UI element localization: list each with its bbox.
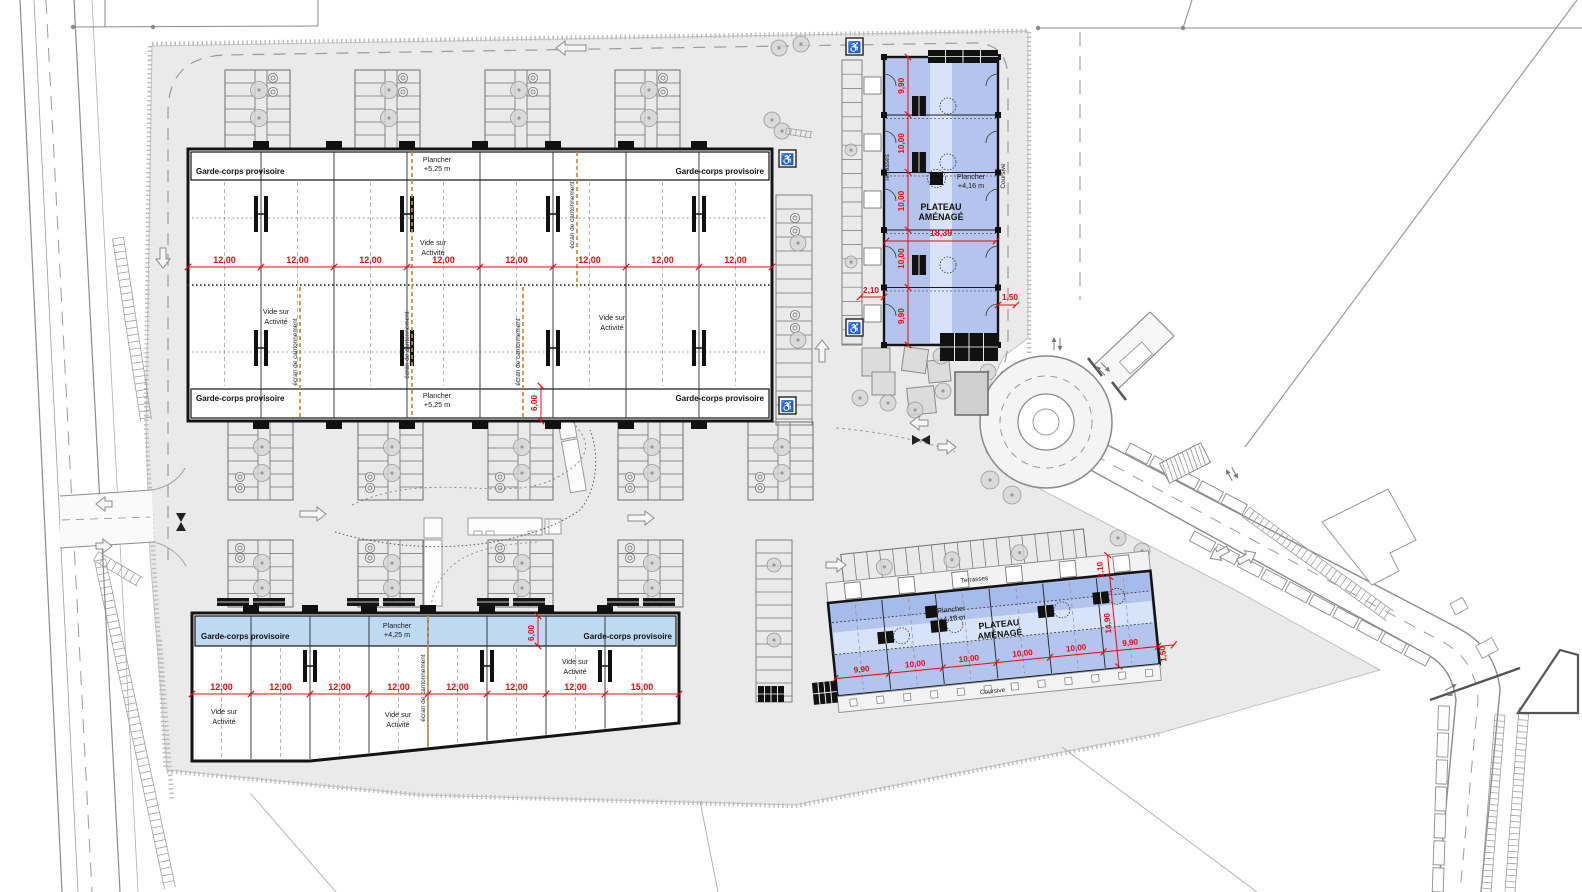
vide-label: Activité xyxy=(212,717,235,726)
terrasses-label: Terrasses xyxy=(884,154,891,182)
dimension-label: 12,00 xyxy=(213,255,236,265)
two-way-arrow-icon xyxy=(1224,465,1240,483)
dimension-label: 10,00 xyxy=(897,133,906,154)
vide-label: Vide sur xyxy=(562,657,589,666)
plancher-label: Plancher xyxy=(383,621,412,630)
plateau-title: AMÉNAGÉ xyxy=(919,212,964,222)
dimension-label: 12,00 xyxy=(651,255,674,265)
garde-corps-label: Garde-corps provisoire xyxy=(196,167,285,176)
plancher-level-label: +5,25 m xyxy=(424,400,450,409)
ecran-label: écran de cantonnement xyxy=(420,654,427,721)
dimension-label: 12,00 xyxy=(578,255,601,265)
dimension-label: 12,00 xyxy=(505,255,528,265)
lamp-icon xyxy=(625,553,634,562)
dimension-label: 9,90 xyxy=(897,77,906,93)
lamp-icon xyxy=(365,553,374,562)
garde-corps-label: Garde-corps provisoire xyxy=(676,394,765,403)
dimension-label: 12,00 xyxy=(269,682,292,692)
accessible-parking-icon: ♿ xyxy=(846,38,863,55)
dimension-label: 1,50 xyxy=(1002,293,1018,302)
lamp-icon xyxy=(235,472,244,481)
lamp-icon xyxy=(268,73,277,82)
dimension-label: 12,00 xyxy=(505,682,528,692)
ecran-label: écran de cantonnement xyxy=(515,318,522,385)
dimension-label: 9,90 xyxy=(897,308,906,324)
site-plan-drawing: ♿♿♿♿ écran de cantonnementécran de canto… xyxy=(0,0,1582,892)
lamp-icon xyxy=(235,483,244,492)
ecran-label: écran de cantonnement xyxy=(569,181,576,248)
lamp-icon xyxy=(755,472,764,481)
lamp-icon xyxy=(365,472,374,481)
lamp-icon xyxy=(790,310,799,319)
plancher-label: Plancher xyxy=(957,172,986,181)
dimension-label: 6,00 xyxy=(530,395,539,411)
dimension-label: 12,00 xyxy=(564,682,587,692)
two-way-arrow-icon xyxy=(1443,682,1461,698)
garde-corps-label: Garde-corps provisoire xyxy=(676,167,765,176)
lamp-icon xyxy=(398,73,407,82)
plaza-pad xyxy=(872,372,895,395)
ecran-label: écran de cantonnement xyxy=(292,318,299,385)
vide-label: Activité xyxy=(600,323,623,332)
vide-label: Activité xyxy=(386,720,409,729)
vide-label: Vide sur xyxy=(263,307,290,316)
dimension-label: 2,10 xyxy=(1095,561,1106,578)
dimension-label: 10,00 xyxy=(897,190,906,211)
dimension-label: 12,00 xyxy=(210,682,233,692)
lamp-icon xyxy=(755,483,764,492)
dimension-label: 9,90 xyxy=(853,664,870,675)
garde-corps-label: Garde-corps provisoire xyxy=(201,632,290,641)
dimension-label: 6,00 xyxy=(527,625,536,641)
vide-label: Vide sur xyxy=(599,313,626,322)
lamp-icon xyxy=(625,543,634,552)
dimension-label: 1,50 xyxy=(1158,645,1169,662)
vide-label: Activité xyxy=(264,317,287,326)
two-way-arrow-icon xyxy=(1052,337,1063,351)
dimension-label: 12,00 xyxy=(328,682,351,692)
lamp-icon xyxy=(235,543,244,552)
lamp-icon xyxy=(235,553,244,562)
lamp-icon xyxy=(365,483,374,492)
plancher-level-label: +5,25 m xyxy=(424,164,450,173)
lamp-icon xyxy=(495,472,504,481)
svg-text:♿: ♿ xyxy=(848,322,862,335)
dimension-label: 12,00 xyxy=(387,682,410,692)
vide-label: Activité xyxy=(421,248,444,257)
svg-text:♿: ♿ xyxy=(848,41,862,54)
lamp-icon xyxy=(625,483,634,492)
accessible-parking-icon: ♿ xyxy=(779,150,796,167)
dimension-label: 12,00 xyxy=(446,682,469,692)
dimension-label: 12,00 xyxy=(359,255,382,265)
lamp-icon xyxy=(790,226,799,235)
vide-label: Vide sur xyxy=(420,238,447,247)
lamp-icon xyxy=(790,323,799,332)
plancher-level-label: +4,25 m xyxy=(384,630,410,639)
lamp-icon xyxy=(625,472,634,481)
ecran-label: écran de cantonnement xyxy=(404,311,411,378)
accessible-parking-icon: ♿ xyxy=(779,397,796,414)
lamp-icon xyxy=(658,87,667,96)
lamp-icon xyxy=(495,553,504,562)
garde-corps-label: Garde-corps provisoire xyxy=(196,394,285,403)
plancher-level-label: +4,16 m xyxy=(958,181,984,190)
lamp-icon xyxy=(365,543,374,552)
plateau-title: PLATEAU xyxy=(921,202,962,212)
dimension-label: 2,10 xyxy=(863,286,879,295)
lamp-icon xyxy=(790,213,799,222)
lamp-icon xyxy=(268,87,277,96)
lamp-icon xyxy=(495,483,504,492)
accessible-parking-icon: ♿ xyxy=(846,319,863,336)
dimension-label: 9,90 xyxy=(1122,637,1139,648)
dimension-label: 12,00 xyxy=(286,255,309,265)
vide-label: Vide sur xyxy=(385,710,412,719)
lamp-icon xyxy=(658,73,667,82)
garde-corps-label: Garde-corps provisoire xyxy=(584,632,673,641)
plaza-pad xyxy=(901,346,928,373)
lamp-icon xyxy=(528,87,537,96)
svg-text:♿: ♿ xyxy=(781,153,795,166)
dimension-label: 18,39 xyxy=(930,228,953,238)
dimension-label: 12,00 xyxy=(724,255,747,265)
building-top-left-geometry: écran de cantonnementécran de cantonneme… xyxy=(185,141,775,429)
coursive-label: Coursive xyxy=(1000,163,1007,189)
dimension-label: 10,00 xyxy=(897,248,906,269)
lamp-icon xyxy=(398,87,407,96)
plancher-label: Plancher xyxy=(423,391,452,400)
dimension-label: 15,00 xyxy=(631,682,654,692)
plancher-label: Plancher xyxy=(423,155,452,164)
vide-label: Vide sur xyxy=(211,707,238,716)
vide-label: Activité xyxy=(563,667,586,676)
lamp-icon xyxy=(528,73,537,82)
svg-text:♿: ♿ xyxy=(781,400,795,413)
lamp-icon xyxy=(495,543,504,552)
